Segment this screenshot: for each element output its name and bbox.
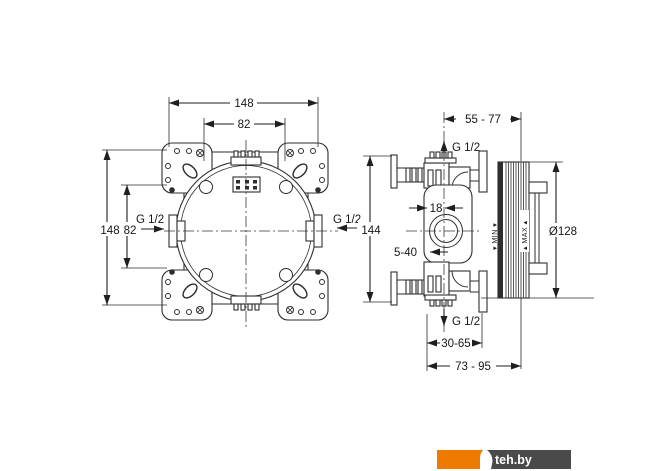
dim-body-height: 144: [358, 156, 392, 302]
dim-label: 82: [124, 225, 137, 237]
dim-label: 18: [430, 203, 443, 215]
bottom-pipe-assembly: [397, 262, 479, 306]
dim-label: 148: [100, 225, 119, 237]
max-depth-label: ▴ MAX ▴: [522, 220, 529, 250]
thread-callout-right: G 1/2: [333, 214, 361, 228]
watermark-orange-block: [437, 450, 485, 469]
dim-label: 82: [238, 119, 251, 131]
dim-label: 144: [361, 225, 381, 237]
min-depth-label: ▾ MIN ▾: [492, 223, 499, 250]
protection-cover: ▾ MIN ▾ ▴ MAX ▴: [492, 162, 547, 298]
dim-height-inner: 82: [121, 185, 167, 268]
frame-tab-bottom: [529, 263, 547, 274]
thread-label: G 1/2: [333, 214, 361, 226]
dim-label: 30-65: [441, 338, 470, 350]
thread-label: G 1/2: [452, 316, 480, 328]
thread-label: G 1/2: [136, 214, 164, 226]
dim-label: 73 - 95: [455, 361, 491, 373]
frame-plate-bottom: [479, 271, 487, 312]
connector-pad: [233, 177, 260, 192]
dim-label: Ø128: [549, 226, 577, 238]
flange-plate-top: [391, 155, 397, 188]
side-view: ▾ MIN ▾ ▴ MAX ▴ 144 55 - 77 G 1/2: [358, 112, 594, 373]
screw-hole: [200, 269, 213, 282]
screw-hole: [280, 269, 293, 282]
valve-body-drawing: 148 82 148 82 G 1/2 G 1/2: [0, 0, 670, 471]
top-pipe-assembly: [397, 152, 479, 188]
frame-plate-top: [479, 151, 487, 192]
watermark-logo: teh.by: [437, 450, 571, 470]
dim-label: 5-40: [394, 247, 417, 259]
dim-label: 55 - 77: [465, 114, 501, 126]
front-view: 148 82 148 82 G 1/2 G 1/2: [98, 96, 361, 328]
frame-tab-top: [529, 182, 547, 193]
watermark-text: teh.by: [495, 453, 532, 467]
thread-callout-bottom: G 1/2: [444, 309, 480, 328]
thread-callout-left: G 1/2: [136, 214, 164, 229]
screw-hole: [280, 181, 293, 194]
screw-hole: [200, 181, 213, 194]
technical-drawing-page: 148 82 148 82 G 1/2 G 1/2: [0, 0, 670, 471]
thread-label: G 1/2: [452, 142, 480, 154]
dim-label: 148: [234, 98, 253, 110]
flange-plate-bottom: [391, 272, 397, 305]
dim-depth-bottom: 73 - 95: [427, 359, 521, 373]
